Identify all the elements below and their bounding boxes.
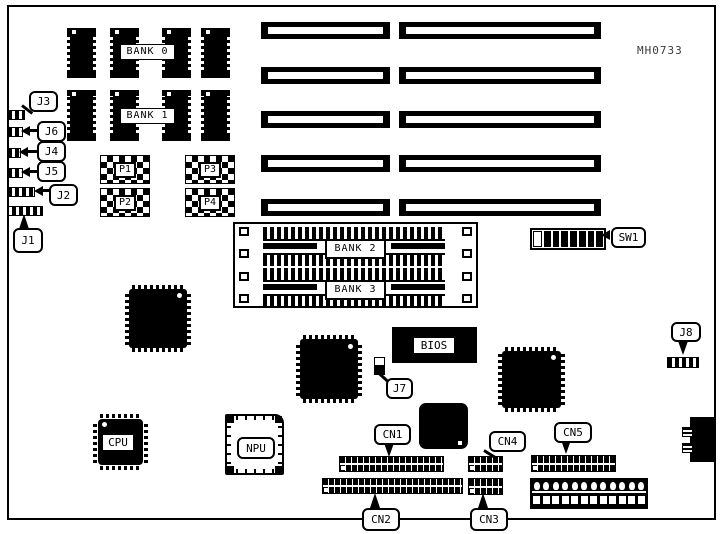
jumper-j5-label: J5 <box>37 161 66 182</box>
simm-latch-column <box>237 227 251 303</box>
expansion-slot <box>261 67 390 84</box>
keyboard-connector-pins <box>682 427 693 437</box>
connector-cn2-label: CN2 <box>362 508 400 531</box>
chip-pins <box>144 421 148 463</box>
pin1-dot <box>348 344 353 349</box>
pin1-dot <box>102 422 107 427</box>
pin1-dot <box>72 92 76 96</box>
connector-cn3-label: CN3 <box>470 508 508 531</box>
bios-label: BIOS <box>414 338 454 353</box>
jumper-j4-label: J4 <box>37 141 66 162</box>
power-hole-row <box>532 493 646 507</box>
dip-switch-segment <box>561 231 568 247</box>
socket-p1-label: P1 <box>114 162 136 178</box>
bank3-label: BANK 3 <box>325 280 386 300</box>
power-pin <box>562 482 568 490</box>
expansion-slot <box>261 155 390 172</box>
simm-body-bar <box>391 284 445 290</box>
simm-body-bar <box>263 284 317 290</box>
pin1-dot <box>115 92 119 96</box>
power-hole <box>628 496 635 504</box>
chip-pins <box>561 354 565 405</box>
simm-latch <box>239 227 249 236</box>
leader-arrow <box>370 493 380 508</box>
power-pin <box>553 482 559 490</box>
pin1-dot <box>115 30 119 34</box>
power-pin <box>610 482 616 490</box>
memory-chip <box>201 28 230 78</box>
simm-latch <box>239 272 249 281</box>
power-pin <box>629 482 635 490</box>
slot-stripe <box>268 204 383 211</box>
expansion-slot <box>399 111 601 128</box>
motherboard-diagram: MH0733 BANK 0 BANK 1 J3 J6 J4 J5 J2 J1 P… <box>0 0 720 534</box>
socket-p2: P2 <box>100 188 150 217</box>
expansion-slot <box>399 199 601 216</box>
socket-p3-label: P3 <box>199 162 221 178</box>
jumper-j2-connector <box>7 187 35 197</box>
power-hole <box>581 496 588 504</box>
power-hole <box>543 496 550 504</box>
slot-stripe <box>406 27 594 34</box>
expansion-slot <box>261 111 390 128</box>
simm-latch <box>462 249 472 258</box>
pin1-dot <box>458 441 462 445</box>
power-pin <box>572 482 578 490</box>
plcc-chip <box>419 403 468 449</box>
connector-cn1-label: CN1 <box>374 424 411 445</box>
expansion-slot <box>399 67 601 84</box>
power-pin <box>638 482 644 490</box>
slot-stripe <box>268 27 383 34</box>
slot-stripe <box>268 116 383 123</box>
power-hole <box>590 496 597 504</box>
chip-pins <box>132 348 184 352</box>
socket-corner <box>275 416 282 423</box>
npu-label: NPU <box>237 437 275 459</box>
expansion-slot <box>399 22 601 39</box>
pin1-dot <box>72 30 76 34</box>
qfp-chip <box>296 335 362 403</box>
qfp-chip <box>125 285 191 352</box>
keyboard-connector <box>690 417 716 462</box>
simm-body-bar <box>263 243 317 249</box>
simm-body-bar <box>391 243 445 249</box>
connector-cn4 <box>468 456 503 472</box>
chip-pins <box>303 399 355 403</box>
power-hole <box>562 496 569 504</box>
chip-pins <box>505 408 558 412</box>
socket-corner <box>227 416 234 423</box>
pin1-dot <box>167 30 171 34</box>
jumper-j2-label: J2 <box>49 184 78 206</box>
chip-pins <box>358 342 362 396</box>
part-number-text: MH0733 <box>637 44 683 57</box>
power-hole <box>609 496 616 504</box>
dip-switch-segment <box>588 231 595 247</box>
power-pin <box>543 482 549 490</box>
connector-cn5 <box>531 455 616 472</box>
pin1-dot <box>206 92 210 96</box>
simm-latch-column <box>460 227 474 303</box>
pin1-dot <box>206 30 210 34</box>
socket-corner <box>275 466 282 473</box>
power-connector <box>530 478 648 509</box>
dip-switch-sw1 <box>530 228 606 250</box>
connector-cn2 <box>322 478 463 494</box>
leader-arrow <box>384 443 394 457</box>
chip-pins <box>187 292 191 345</box>
jumper-j6-label: J6 <box>37 121 66 142</box>
connector-cn5-label: CN5 <box>554 422 592 443</box>
expansion-slot <box>261 22 390 39</box>
power-hole <box>638 496 645 504</box>
dip-switch-segment <box>553 231 560 247</box>
keyboard-connector-pins <box>682 443 693 453</box>
chip-pins <box>100 466 141 470</box>
power-pin <box>591 482 597 490</box>
jumper-j8-connector <box>667 357 699 368</box>
switch-sw1-label: SW1 <box>611 227 646 248</box>
socket-p2-label: P2 <box>114 195 136 211</box>
simm-latch <box>462 227 472 236</box>
connector-cn1 <box>339 456 444 472</box>
slot-stripe <box>268 72 383 79</box>
slot-stripe <box>406 72 594 79</box>
qfp-chip <box>498 347 565 412</box>
power-pin <box>619 482 625 490</box>
simm-latch <box>239 294 249 303</box>
expansion-slot <box>261 199 390 216</box>
jumper-j3-label: J3 <box>29 91 58 112</box>
expansion-slot <box>399 155 601 172</box>
cpu-label: CPU <box>103 435 133 450</box>
bank0-label: BANK 0 <box>120 44 175 60</box>
memory-chip <box>67 28 96 78</box>
memory-chip <box>67 90 96 141</box>
memory-chip <box>201 90 230 141</box>
pin1-dot <box>551 355 556 360</box>
slot-stripe <box>406 160 594 167</box>
jumper-j7-label: J7 <box>386 378 413 399</box>
dip-switch-segment <box>533 231 542 247</box>
power-hole <box>600 496 607 504</box>
power-pin <box>600 482 606 490</box>
slot-stripe <box>268 160 383 167</box>
socket-p4: P4 <box>185 188 235 217</box>
power-pin <box>534 482 540 490</box>
chip-pins <box>93 421 97 463</box>
leader-arrow <box>19 214 29 229</box>
jumper-j1-label: J1 <box>13 228 43 253</box>
power-hole <box>571 496 578 504</box>
power-hole <box>619 496 626 504</box>
socket-corner <box>227 466 234 473</box>
slot-stripe <box>406 116 594 123</box>
simm-latch <box>462 294 472 303</box>
pin1-dot <box>167 92 171 96</box>
power-pin-row <box>532 480 646 491</box>
socket-p3: P3 <box>185 155 235 184</box>
dip-switch-segment <box>579 231 586 247</box>
simm-latch <box>239 249 249 258</box>
power-pin <box>581 482 587 490</box>
chip-pins <box>100 414 141 418</box>
socket-p1: P1 <box>100 155 150 184</box>
jumper-j8-label: J8 <box>671 322 701 342</box>
dip-switch-segment <box>544 231 551 247</box>
pin1-dot <box>177 293 182 298</box>
leader-arrow <box>678 341 688 355</box>
bank1-label: BANK 1 <box>120 108 175 124</box>
leader-arrow <box>601 230 610 240</box>
power-hole <box>552 496 559 504</box>
slot-stripe <box>406 204 594 211</box>
socket-p4-label: P4 <box>199 195 221 211</box>
dip-switch-segment <box>570 231 577 247</box>
power-hole <box>533 496 540 504</box>
connector-cn4-label: CN4 <box>489 431 526 452</box>
leader-arrow <box>478 493 488 508</box>
jumper-j3-connector <box>7 110 25 120</box>
simm-latch <box>462 272 472 281</box>
bank2-label: BANK 2 <box>325 239 386 259</box>
